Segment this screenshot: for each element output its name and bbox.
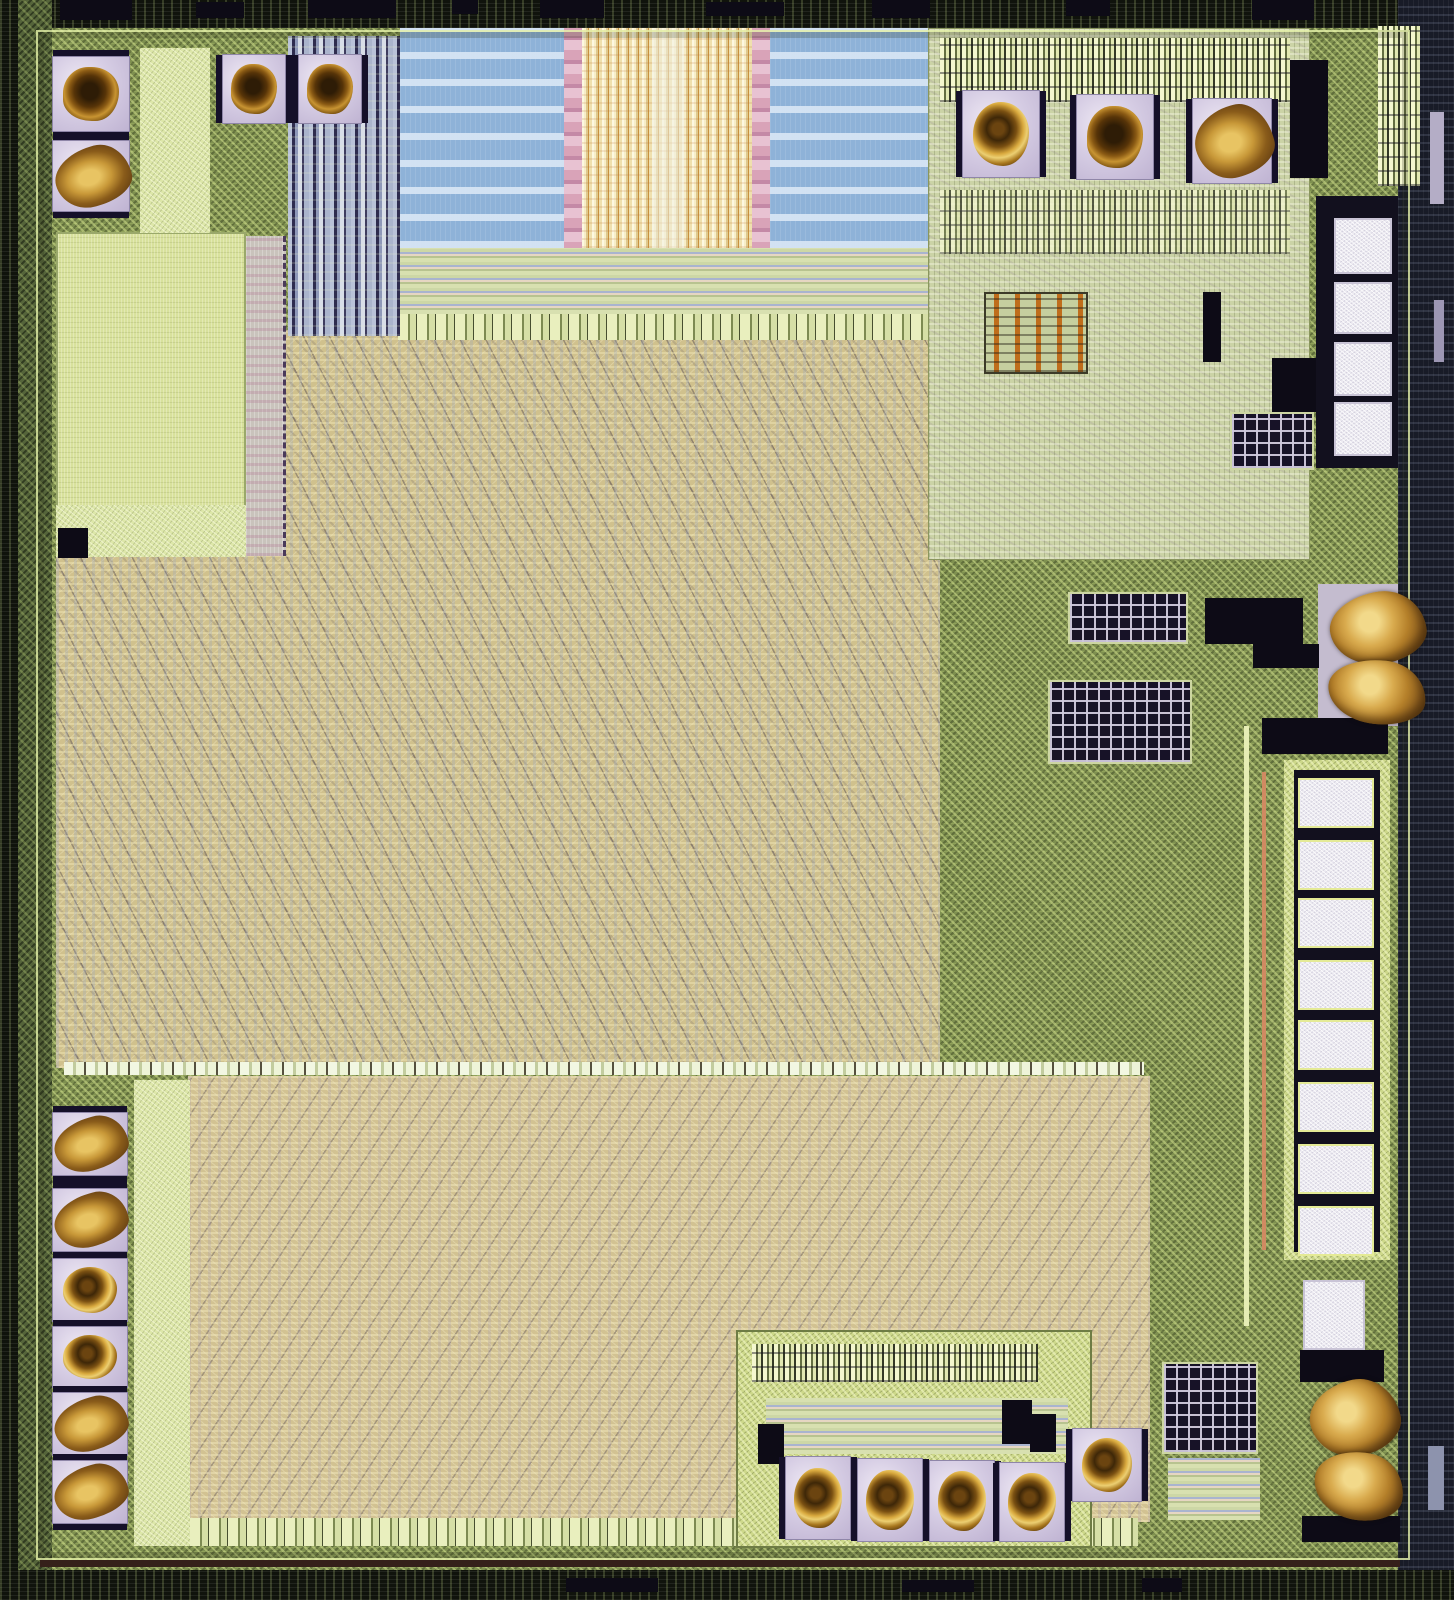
gold-ball-bond — [49, 1109, 134, 1179]
dark-block — [1203, 292, 1221, 362]
gold-ball-bond — [866, 1470, 913, 1531]
edge-streak — [1430, 112, 1444, 204]
bond-pad — [52, 1460, 128, 1524]
bond-pad — [929, 1460, 995, 1542]
gold-ball-bond — [973, 102, 1029, 166]
gold-residue-blob — [1325, 586, 1430, 671]
gold-ball-bond — [49, 1185, 134, 1255]
dark-block — [452, 0, 478, 14]
dark-block — [308, 0, 396, 18]
dark-block — [1253, 644, 1319, 668]
gold-ball-bond — [49, 1389, 134, 1459]
pad-layer — [0, 0, 1454, 1600]
via-grid-array — [1230, 412, 1314, 470]
via-grid-array — [1162, 1362, 1258, 1454]
dark-block — [758, 1424, 784, 1464]
probe-pad — [1334, 402, 1392, 456]
bond-pad — [52, 140, 130, 212]
gold-ball-bond — [794, 1468, 841, 1529]
gold-ball-bond — [1087, 106, 1143, 168]
bond-pad — [52, 1258, 128, 1322]
bond-pad — [785, 1456, 851, 1540]
gold-ball-bond — [938, 1471, 985, 1530]
gold-residue-blob — [1303, 1371, 1407, 1464]
gold-ball-bond — [231, 64, 277, 114]
dark-block — [1142, 1578, 1182, 1592]
dark-block — [1030, 1414, 1056, 1452]
probe-pad — [1298, 1082, 1374, 1132]
probe-pad — [1298, 1020, 1374, 1070]
bond-pad — [222, 54, 286, 124]
dark-block — [1205, 598, 1303, 644]
dark-block — [196, 2, 244, 18]
gold-ball-bond — [48, 137, 137, 214]
probe-pad — [1298, 778, 1374, 828]
probe-pad — [1334, 342, 1392, 396]
probe-pad — [1334, 282, 1392, 334]
probe-pad — [1298, 1206, 1374, 1256]
bond-pad — [52, 1188, 128, 1252]
probe-pad — [1303, 1280, 1365, 1350]
edge-streak — [1244, 726, 1249, 1326]
gold-ball-bond — [1008, 1473, 1055, 1531]
bond-pad — [999, 1462, 1065, 1542]
gold-residue-blob — [1309, 1445, 1409, 1528]
via-grid-array — [1048, 680, 1192, 764]
probe-pad — [1298, 840, 1374, 890]
die-photo — [0, 0, 1454, 1600]
bond-pad — [1192, 98, 1272, 184]
dark-block — [58, 528, 88, 558]
edge-streak — [1428, 1446, 1444, 1510]
probe-pad — [1298, 898, 1374, 948]
gold-ball-bond — [49, 1457, 134, 1527]
bond-pad — [298, 54, 362, 124]
gold-ball-bond — [63, 1335, 118, 1379]
dark-block — [902, 1580, 974, 1592]
gold-ball-bond — [63, 67, 119, 122]
bond-pad — [52, 1392, 128, 1456]
edge-streak — [1262, 772, 1266, 1250]
dark-block — [60, 0, 132, 20]
bond-pad — [1076, 94, 1154, 180]
bond-pad — [52, 56, 130, 132]
probe-pad — [1298, 960, 1374, 1010]
dark-block — [1262, 718, 1388, 754]
dark-block — [1290, 60, 1328, 178]
bond-pad — [1072, 1428, 1142, 1502]
dark-block — [1300, 1350, 1384, 1382]
bond-pad — [962, 90, 1040, 178]
dark-block — [1302, 1516, 1400, 1542]
dark-block — [566, 1578, 658, 1592]
probe-pad — [1298, 1144, 1374, 1194]
dark-block — [1002, 1400, 1032, 1444]
gold-ball-bond — [1186, 96, 1280, 185]
dark-block — [1272, 358, 1316, 412]
edge-streak — [1434, 300, 1444, 362]
dark-block — [1066, 0, 1110, 16]
gold-ball-bond — [1082, 1438, 1132, 1491]
gold-ball-bond — [307, 64, 353, 114]
dark-block — [706, 2, 784, 16]
bond-pad — [857, 1458, 923, 1542]
gold-ball-bond — [63, 1267, 118, 1313]
bond-pad — [52, 1112, 128, 1176]
dark-block — [1252, 0, 1314, 20]
probe-pad — [1334, 218, 1392, 274]
bond-pad — [52, 1326, 128, 1388]
dark-block — [872, 0, 930, 18]
dark-block — [540, 0, 604, 18]
via-grid-array — [1068, 592, 1188, 644]
